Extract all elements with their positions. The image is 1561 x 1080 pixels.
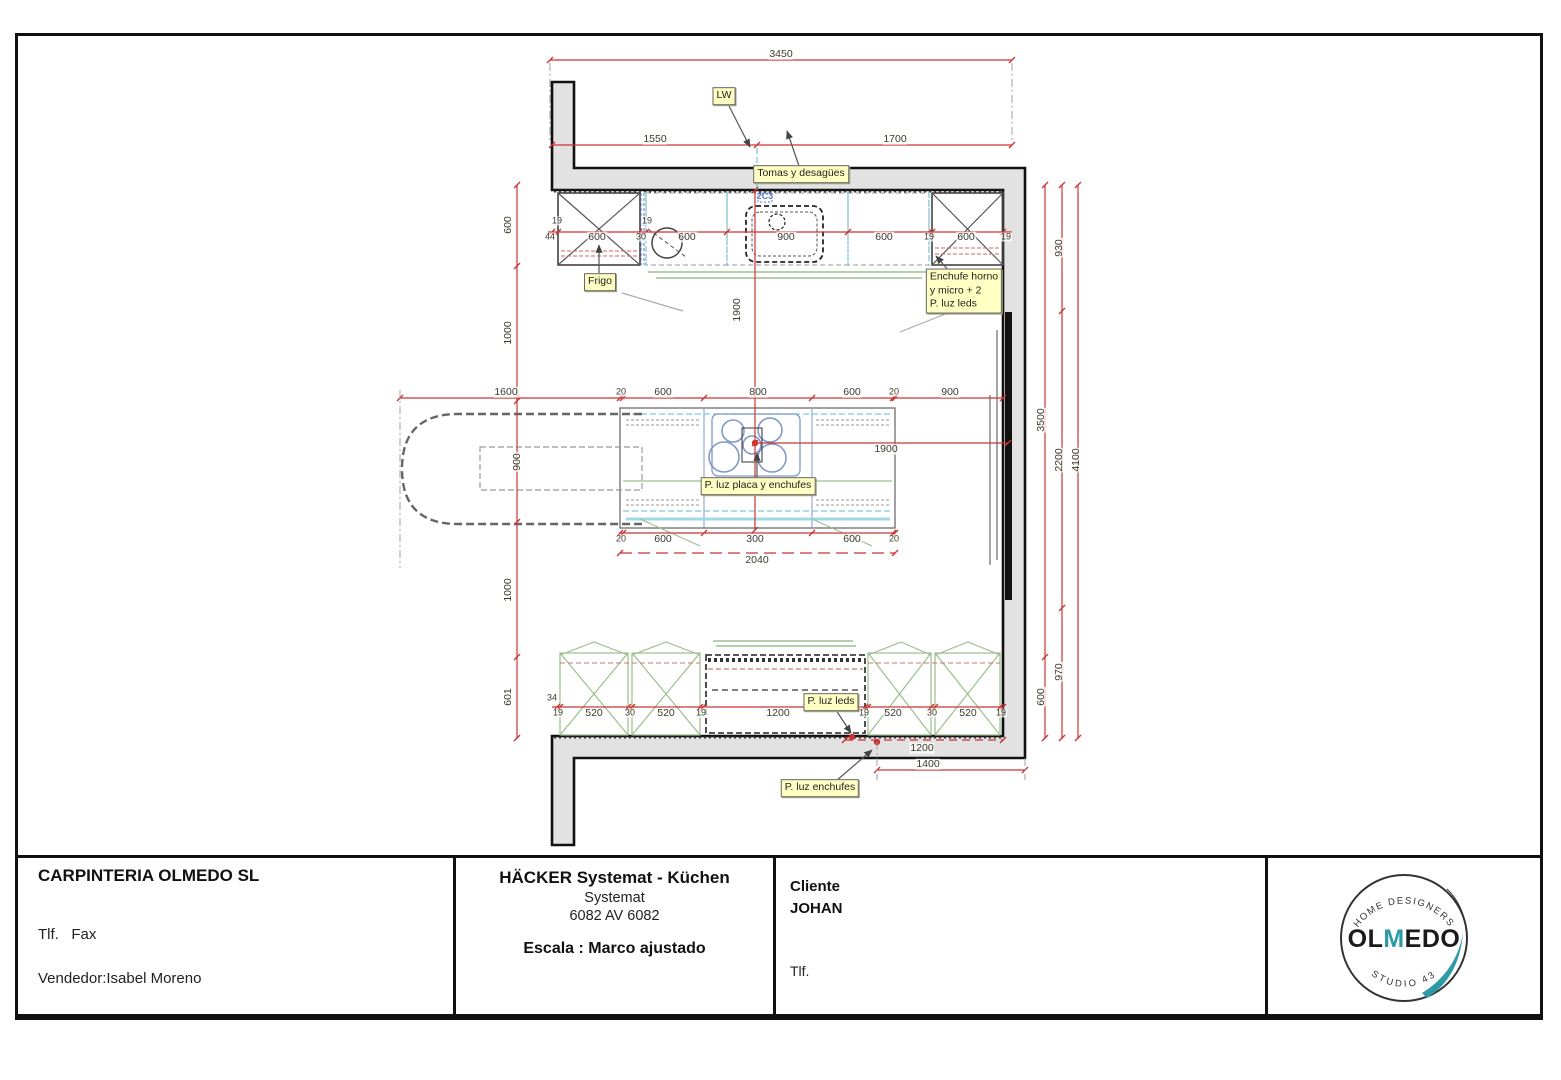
dim-label: 34 <box>546 694 558 703</box>
dim-label: 970 <box>1054 662 1065 682</box>
callout-label: LW <box>713 87 736 105</box>
product-cell: HÄCKER Systemat - Küchen Systemat 6082 A… <box>453 858 773 1017</box>
product-series: Systemat <box>456 890 773 906</box>
dim-label: 19 <box>551 217 563 226</box>
plan-canvas <box>0 0 1561 855</box>
dim-label: 800 <box>748 387 768 398</box>
dim-label: 30 <box>926 709 938 718</box>
oven-tall-unit <box>932 193 1003 265</box>
dim-label: 20 <box>888 388 900 397</box>
dim-label: 1550 <box>642 134 667 145</box>
dim-label: 520 <box>958 708 978 719</box>
dim-label: 44 <box>544 233 556 242</box>
logo-cell: · HOME DESIGNERS · OLMEDO STUDIO 43 <box>1265 858 1540 1017</box>
dim-label: 1700 <box>882 134 907 145</box>
dim-label: 600 <box>874 232 894 243</box>
client-cell: Cliente JOHAN Tlf. <box>773 858 1265 1017</box>
dim-label: 2200 <box>1054 447 1065 472</box>
appliance-unit-1200 <box>706 641 865 733</box>
dim-label: 900 <box>940 387 960 398</box>
sink <box>746 194 823 262</box>
dim-label: 1400 <box>915 759 940 770</box>
company-name: CARPINTERIA OLMEDO SL <box>38 866 259 886</box>
dim-label: 19 <box>1000 233 1012 242</box>
dim-label: 600 <box>677 232 697 243</box>
scale-note: Escala : Marco ajustado <box>456 940 773 958</box>
callout-label: 2C3 <box>754 190 777 204</box>
dim-label: 1200 <box>909 743 934 754</box>
dim-label: 19 <box>858 709 870 718</box>
dim-label: 19 <box>695 709 707 718</box>
dim-label: 600 <box>587 232 607 243</box>
dim-label: 520 <box>584 708 604 719</box>
dim-label: 19 <box>641 217 653 226</box>
callout-label: Tomas y desagües <box>753 165 849 183</box>
company-cell: CARPINTERIA OLMEDO SL Tlf. Fax Vendedor:… <box>18 858 453 1017</box>
dim-label: 600 <box>503 215 514 235</box>
dim-label: 1200 <box>765 708 790 719</box>
dim-label: 3450 <box>768 49 793 60</box>
dim-label: 3500 <box>1036 407 1047 432</box>
lower-cabinet-run <box>560 641 1000 735</box>
dim-label: 1900 <box>873 444 898 455</box>
dim-label: 20 <box>888 535 900 544</box>
callout-label: P. luz enchufes <box>781 779 859 797</box>
dim-label: 900 <box>776 232 796 243</box>
dim-label: 30 <box>635 233 647 242</box>
callout-label: P. luz placa y enchufes <box>701 477 816 495</box>
dim-label: 19 <box>552 709 564 718</box>
drawing-sheet: 3450155017001944600301960090060019600196… <box>0 0 1561 1080</box>
dim-label: 20 <box>615 388 627 397</box>
product-code: 6082 AV 6082 <box>456 908 773 924</box>
dim-label: 1600 <box>493 387 518 398</box>
callout-label: P. luz leds <box>803 693 858 711</box>
vendor-name: Vendedor:Isabel Moreno <box>38 970 201 987</box>
title-block: CARPINTERIA OLMEDO SL Tlf. Fax Vendedor:… <box>15 855 1543 1020</box>
dim-label: 600 <box>653 387 673 398</box>
dim-label: 1000 <box>503 577 514 602</box>
dim-label: 1000 <box>503 320 514 345</box>
client-name: Cliente JOHAN <box>790 876 843 920</box>
product-line: HÄCKER Systemat - Küchen <box>456 868 773 888</box>
right-wall-window <box>990 312 1012 600</box>
callout-label: Frigo <box>584 273 616 291</box>
dim-label: 2040 <box>744 555 769 566</box>
phone-fax: Tlf. Fax <box>38 926 96 943</box>
dim-label: 19 <box>995 709 1007 718</box>
dim-label: 930 <box>1054 238 1065 258</box>
kitchen-floor-plan: 3450155017001944600301960090060019600196… <box>0 0 1561 855</box>
dim-label: 300 <box>745 534 765 545</box>
dim-label: 1900 <box>732 297 743 322</box>
dim-label: 600 <box>1036 687 1047 707</box>
logo-name: OLMEDO <box>1348 925 1461 953</box>
dim-label: 4100 <box>1071 447 1082 472</box>
dim-label: 19 <box>923 233 935 242</box>
dim-label: 30 <box>624 709 636 718</box>
dim-label: 601 <box>503 687 514 707</box>
dim-label: 20 <box>615 535 627 544</box>
dim-label: 520 <box>883 708 903 719</box>
dim-label: 900 <box>512 452 523 472</box>
dim-label: 600 <box>956 232 976 243</box>
callout-label: Enchufe horno y micro + 2 P. luz leds <box>926 269 1002 314</box>
dim-label: 600 <box>653 534 673 545</box>
dim-label: 520 <box>656 708 676 719</box>
client-phone: Tlf. <box>790 963 809 979</box>
dim-label: 600 <box>842 387 862 398</box>
dim-label: 600 <box>842 534 862 545</box>
olmedo-logo: · HOME DESIGNERS · OLMEDO STUDIO 43 <box>1319 863 1489 1013</box>
